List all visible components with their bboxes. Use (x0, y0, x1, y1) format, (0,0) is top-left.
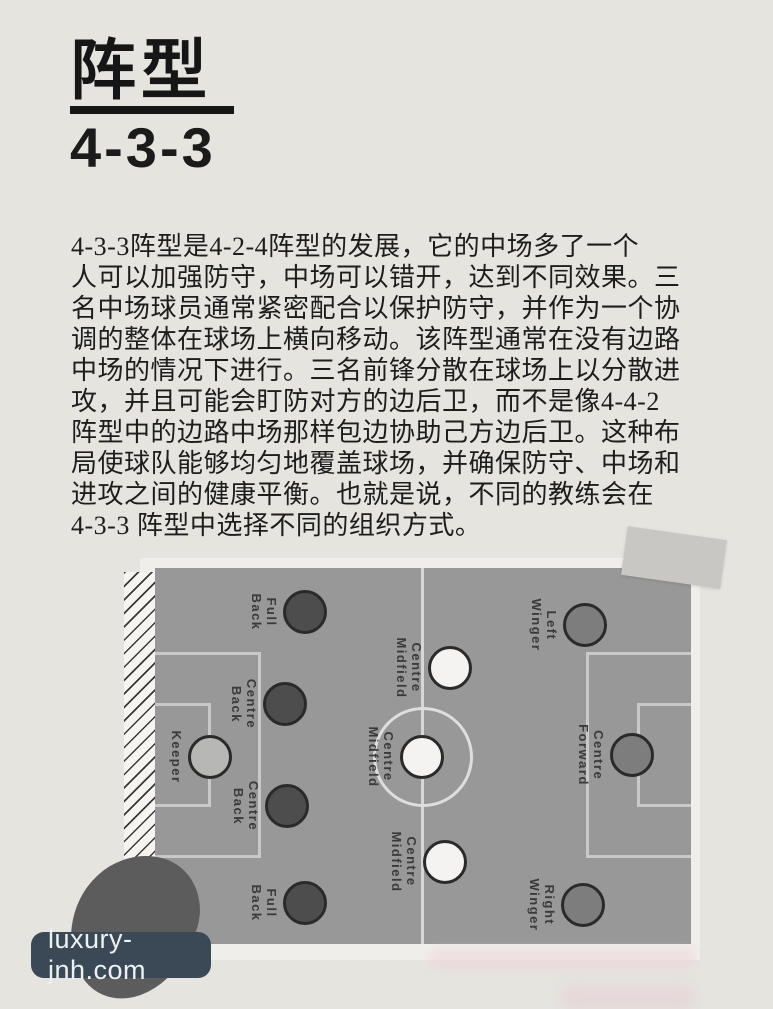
page-title: 阵型 (70, 36, 234, 114)
paragraph-line: 人可以加强防守，中场可以错开，达到不同效果。三 (71, 262, 731, 293)
paragraph-line: 名中场球员通常紧密配合以保护防守，并作为一个协 (71, 293, 731, 324)
watermark-badge: luxury-jnh.com (31, 932, 211, 978)
player-centre-forward (610, 733, 654, 777)
description-text: 4-3-3阵型是4-2-4阵型的发展，它的中场多了一个人可以加强防守，中场可以错… (71, 231, 731, 541)
paragraph-line: 局使球队能够均匀地覆盖球场，并确保防守、中场和 (71, 448, 731, 479)
paragraph-line: 阵型中的边路中场那样包边协助己方边后卫。这种布 (71, 417, 731, 448)
player-label-centre-midfield-bottom: Centre Midfield (389, 831, 419, 892)
player-full-back-bottom (283, 881, 327, 925)
player-label-centre-midfield-centre: Centre Midfield (366, 726, 396, 787)
pink-smudge-strip (430, 948, 695, 970)
player-centre-midfield-bottom (423, 840, 467, 884)
player-label-left-winger: Left Winger (529, 599, 559, 652)
player-label-centre-back-bottom: Centre Back (231, 781, 261, 831)
pink-smudge-corner (560, 985, 695, 1009)
paragraph-line: 4-3-3阵型是4-2-4阵型的发展，它的中场多了一个 (71, 231, 731, 262)
player-centre-midfield-centre (400, 735, 444, 779)
watermark-text: luxury-jnh.com (48, 924, 211, 986)
player-label-centre-forward: Centre Forward (576, 724, 606, 786)
formation-name: 4-3-3 (70, 120, 234, 176)
player-label-keeper: Keeper (169, 730, 184, 783)
infographic-page: 阵型 4-3-3 4-3-3阵型是4-2-4阵型的发展，它的中场多了一个人可以加… (0, 0, 773, 1009)
player-label-centre-back-top: Centre Back (229, 679, 259, 729)
player-centre-back-top (263, 682, 307, 726)
player-right-winger (561, 883, 605, 927)
paragraph-line: 调的整体在球场上横向移动。该阵型通常在没有边路 (71, 324, 731, 355)
player-label-right-winger: Right Winger (527, 879, 557, 932)
player-keeper (188, 735, 232, 779)
title-block: 阵型 4-3-3 (70, 36, 234, 176)
paragraph-line: 中场的情况下进行。三名前锋分散在球场上以分散进 (71, 355, 731, 386)
paragraph-line: 进攻之间的健康平衡。也就是说，不同的教练会在 (71, 479, 731, 510)
player-left-winger (563, 603, 607, 647)
player-full-back-top (283, 590, 327, 634)
player-centre-midfield-top (428, 646, 472, 690)
player-label-full-back-bottom: Full Back (249, 884, 279, 921)
formation-diagram: KeeperFull BackCentre BackCentre BackFul… (140, 558, 700, 960)
player-label-centre-midfield-top: Centre Midfield (394, 637, 424, 698)
player-label-full-back-top: Full Back (249, 593, 279, 630)
paragraph-line: 攻，并且可能会盯防对方的边后卫，而不是像4-4-2 (71, 386, 731, 417)
player-centre-back-bottom (265, 784, 309, 828)
